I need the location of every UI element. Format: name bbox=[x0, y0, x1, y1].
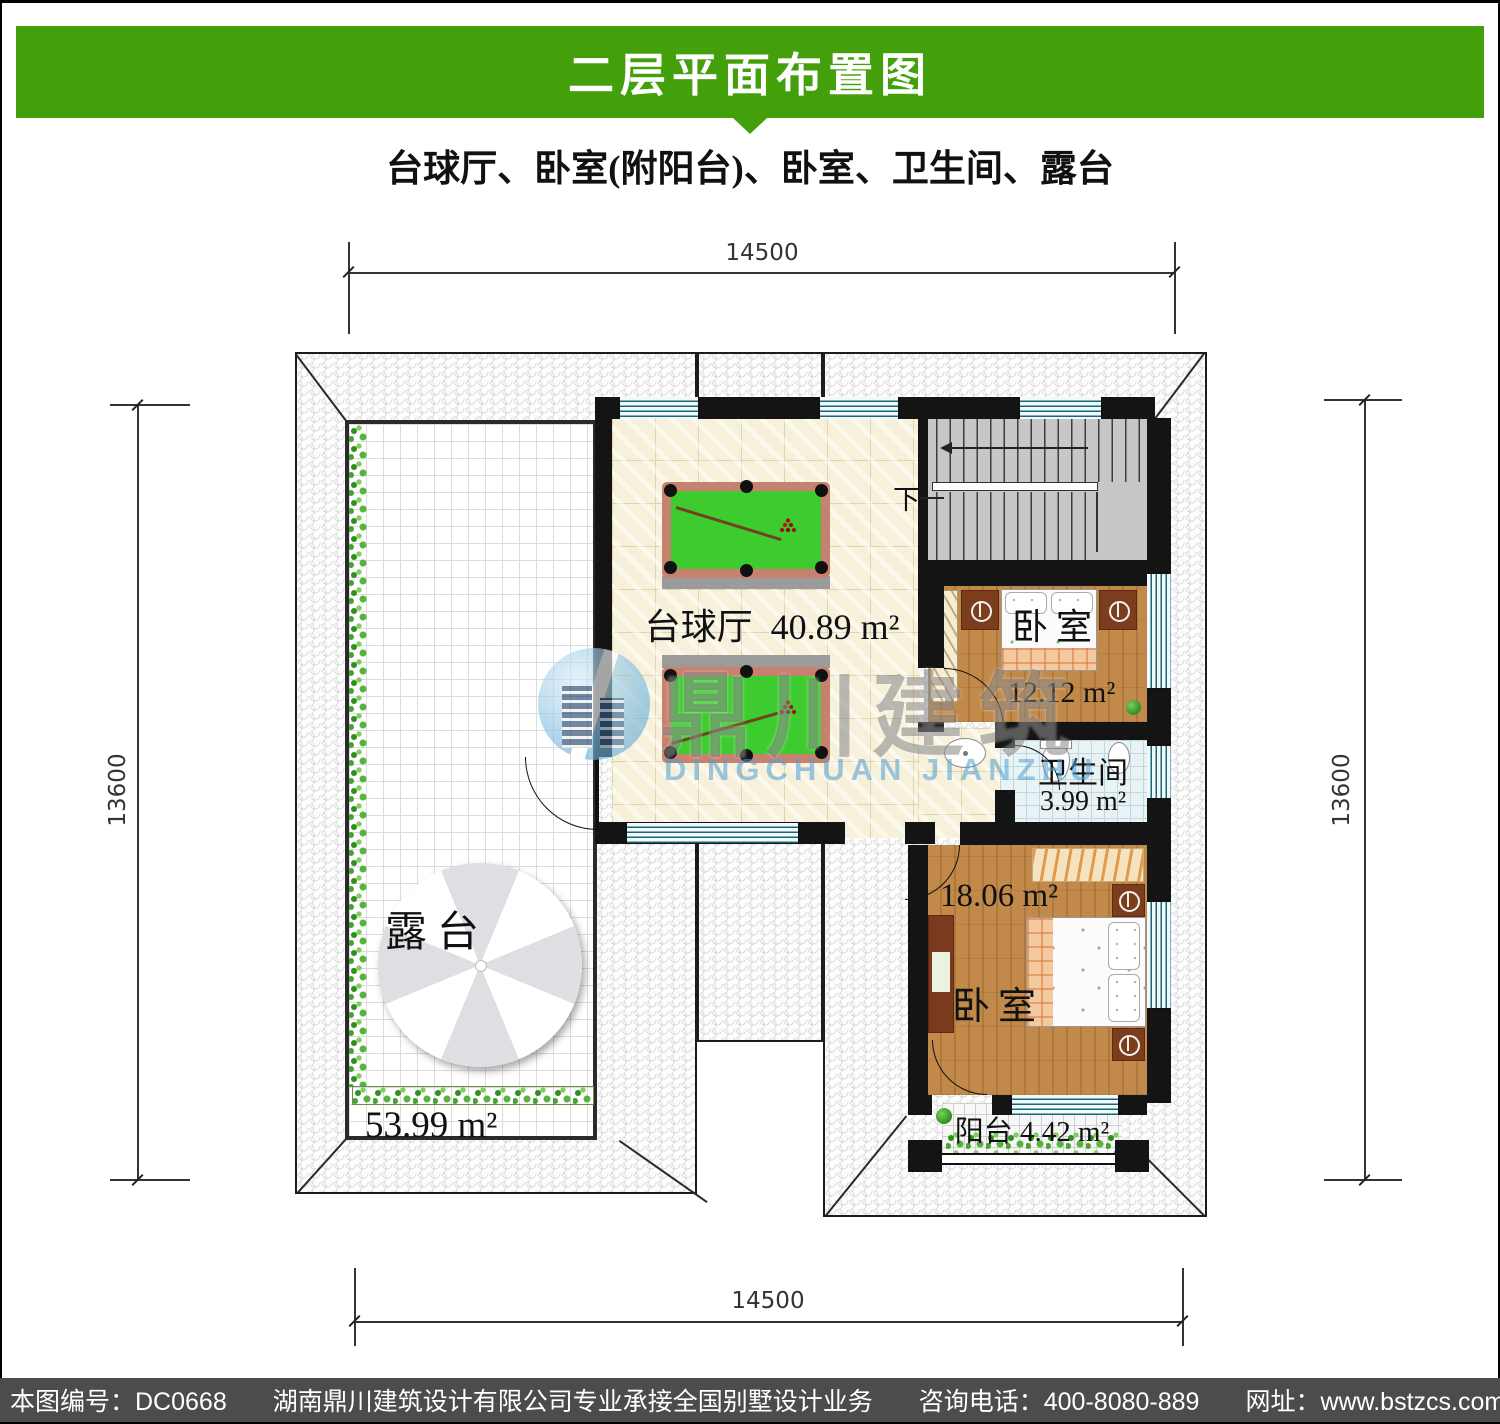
terrace-name-label: 露台 bbox=[385, 898, 489, 959]
dim-bottom-label: 14500 bbox=[718, 1288, 818, 1314]
wall-hall-south-right bbox=[905, 822, 935, 844]
terrace-plants-left bbox=[349, 425, 367, 1087]
wall-bedroom2-south-left bbox=[908, 1095, 932, 1115]
page-border-left bbox=[0, 0, 2, 1424]
terrace-area-label: 53.99 m² bbox=[365, 1104, 497, 1147]
table-pocket bbox=[815, 669, 828, 682]
footer-website: 网址：www.bstzcs.com bbox=[1245, 1382, 1500, 1418]
nightstand bbox=[961, 590, 999, 630]
dim-left-label-wrap: 13600 bbox=[83, 750, 153, 830]
terrace-planter-bottom bbox=[352, 1086, 594, 1105]
nightstand bbox=[1112, 884, 1145, 917]
dim-bottom-ext-left bbox=[354, 1268, 356, 1346]
dim-left-label: 13600 bbox=[105, 753, 131, 826]
balcony-label: 阳台 4.42 m² bbox=[942, 1108, 1122, 1150]
table-pocket bbox=[664, 561, 677, 574]
bedroom1-area-label: 12.12 m² bbox=[1008, 676, 1115, 710]
bedroom2-name: 卧室 bbox=[952, 975, 1044, 1030]
dim-top-ext-right bbox=[1174, 242, 1176, 334]
window-hall-south bbox=[625, 823, 800, 843]
nightstand bbox=[1099, 590, 1137, 630]
balcony-name: 阳台 bbox=[955, 1116, 1013, 1148]
dim-right-line bbox=[1364, 400, 1366, 1180]
dim-top-ext-left bbox=[348, 242, 350, 334]
dim-left-ext-top bbox=[110, 404, 190, 406]
billiard-balls-rack bbox=[778, 518, 798, 533]
bed-pillow bbox=[1108, 922, 1140, 970]
dim-top-label: 14500 bbox=[712, 240, 812, 266]
wall-stair-south bbox=[918, 560, 1155, 586]
bedroom1-name: 卧室 bbox=[1012, 598, 1100, 650]
billiard-name: 台球厅 bbox=[645, 607, 753, 647]
bedroom2-wardrobe-panel bbox=[932, 952, 950, 992]
stair-treads-lower bbox=[936, 492, 1094, 560]
header-banner: 二层平面布置图 bbox=[16, 26, 1484, 118]
balcony-area-value: 4.42 m² bbox=[1020, 1116, 1109, 1148]
dim-left-line bbox=[137, 405, 139, 1180]
window-north-2 bbox=[818, 397, 900, 419]
table-pocket bbox=[664, 669, 677, 682]
footer-drawing-no: 本图编号：DC0668 bbox=[10, 1382, 227, 1418]
page-subtitle: 台球厅、卧室(附阳台)、卧室、卫生间、露台 bbox=[0, 138, 1500, 192]
stair-direction-line bbox=[950, 447, 1088, 449]
nightstand bbox=[1112, 1028, 1145, 1061]
footer-bar: 本图编号：DC0668 湖南鼎川建筑设计有限公司专业承接全国别墅设计业务 咨询电… bbox=[0, 1378, 1500, 1424]
table-pocket bbox=[664, 746, 677, 759]
banner-pointer bbox=[733, 118, 767, 134]
table-pocket bbox=[815, 746, 828, 759]
stair-treads-upper bbox=[936, 418, 1147, 482]
wall-bedroom1-south bbox=[995, 722, 1147, 740]
table-pocket bbox=[740, 564, 753, 577]
patio-umbrella bbox=[378, 863, 582, 1067]
table-pocket bbox=[740, 480, 753, 493]
table-pocket bbox=[740, 665, 753, 678]
bed-pillow bbox=[1108, 974, 1140, 1022]
dim-top-line bbox=[348, 272, 1175, 274]
footer-phone: 咨询电话：400-8080-889 bbox=[919, 1382, 1200, 1418]
balcony-rail bbox=[942, 1153, 1122, 1165]
bathroom-area-label: 3.99 m² bbox=[1040, 786, 1126, 818]
dim-bottom-line bbox=[354, 1321, 1183, 1323]
stair-down-label: 下 bbox=[893, 478, 920, 517]
dim-left-ext-bottom bbox=[110, 1179, 190, 1181]
table-pocket bbox=[815, 561, 828, 574]
balcony-post bbox=[908, 1140, 942, 1172]
sink-drain bbox=[963, 751, 968, 756]
plant-icon bbox=[1126, 700, 1141, 715]
wall-hall-bedroom1-stub bbox=[918, 722, 944, 732]
window-north-1 bbox=[618, 397, 700, 419]
stair-arrow-head bbox=[940, 442, 952, 454]
wall-bathroom-south bbox=[960, 822, 1147, 845]
table-pocket bbox=[664, 484, 677, 497]
billiard-area: 40.89 m² bbox=[771, 607, 900, 647]
dim-bottom-ext-right bbox=[1182, 1268, 1184, 1346]
table-pocket bbox=[740, 749, 753, 762]
billiard-label: 台球厅 40.89 m² bbox=[612, 598, 932, 650]
wall-bathroom-west-stub1 bbox=[995, 740, 1015, 748]
window-north-stair bbox=[1018, 397, 1103, 419]
window-east-bathroom bbox=[1147, 744, 1171, 800]
page-border-top bbox=[0, 0, 1500, 3]
table-pocket bbox=[815, 484, 828, 497]
window-east-bedroom1 bbox=[1147, 572, 1171, 690]
window-east-bedroom2 bbox=[1147, 900, 1171, 1010]
dim-right-label: 13600 bbox=[1329, 753, 1355, 826]
floorplan-page: 二层平面布置图 台球厅、卧室(附阳台)、卧室、卫生间、露台 14500 1450… bbox=[0, 0, 1500, 1424]
footer-company: 湖南鼎川建筑设计有限公司专业承接全国别墅设计业务 bbox=[273, 1382, 873, 1418]
stair-return-line bbox=[1096, 492, 1098, 552]
billiard-balls-rack bbox=[778, 700, 798, 715]
terrace-door-leaf bbox=[595, 757, 599, 832]
stair-handrail bbox=[932, 482, 1098, 491]
bedroom2-area-label: 18.06 m² bbox=[940, 878, 1058, 915]
stair-down-tick bbox=[920, 497, 944, 499]
bedroom2-clothes-rack bbox=[1032, 848, 1144, 882]
page-title: 二层平面布置图 bbox=[568, 39, 932, 105]
dim-right-label-wrap: 13600 bbox=[1307, 750, 1377, 830]
wall-hall-west bbox=[595, 397, 612, 757]
bed-blanket bbox=[1002, 648, 1096, 670]
